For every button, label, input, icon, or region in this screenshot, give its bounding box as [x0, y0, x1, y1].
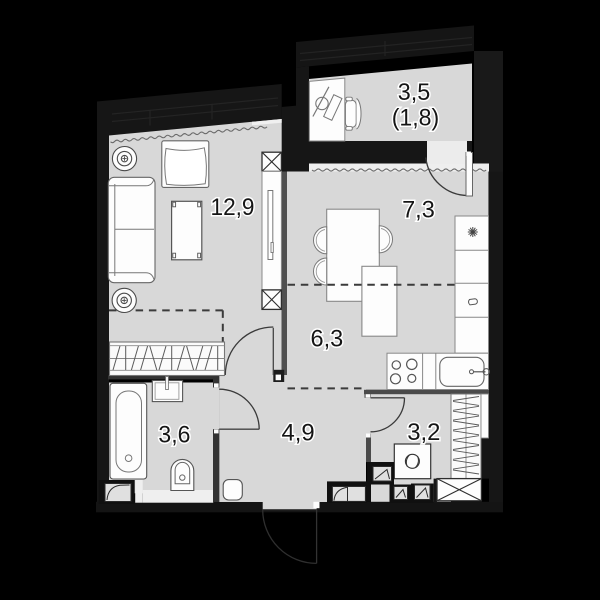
svg-text:6,3: 6,3 — [311, 326, 344, 353]
svg-text:3,2: 3,2 — [407, 419, 440, 446]
svg-text:7,3: 7,3 — [402, 196, 435, 223]
svg-text:(1,8): (1,8) — [392, 104, 440, 131]
svg-text:3,6: 3,6 — [158, 422, 190, 449]
svg-text:3,5: 3,5 — [398, 79, 431, 106]
svg-text:4,9: 4,9 — [282, 420, 315, 447]
svg-text:12,9: 12,9 — [211, 194, 255, 221]
